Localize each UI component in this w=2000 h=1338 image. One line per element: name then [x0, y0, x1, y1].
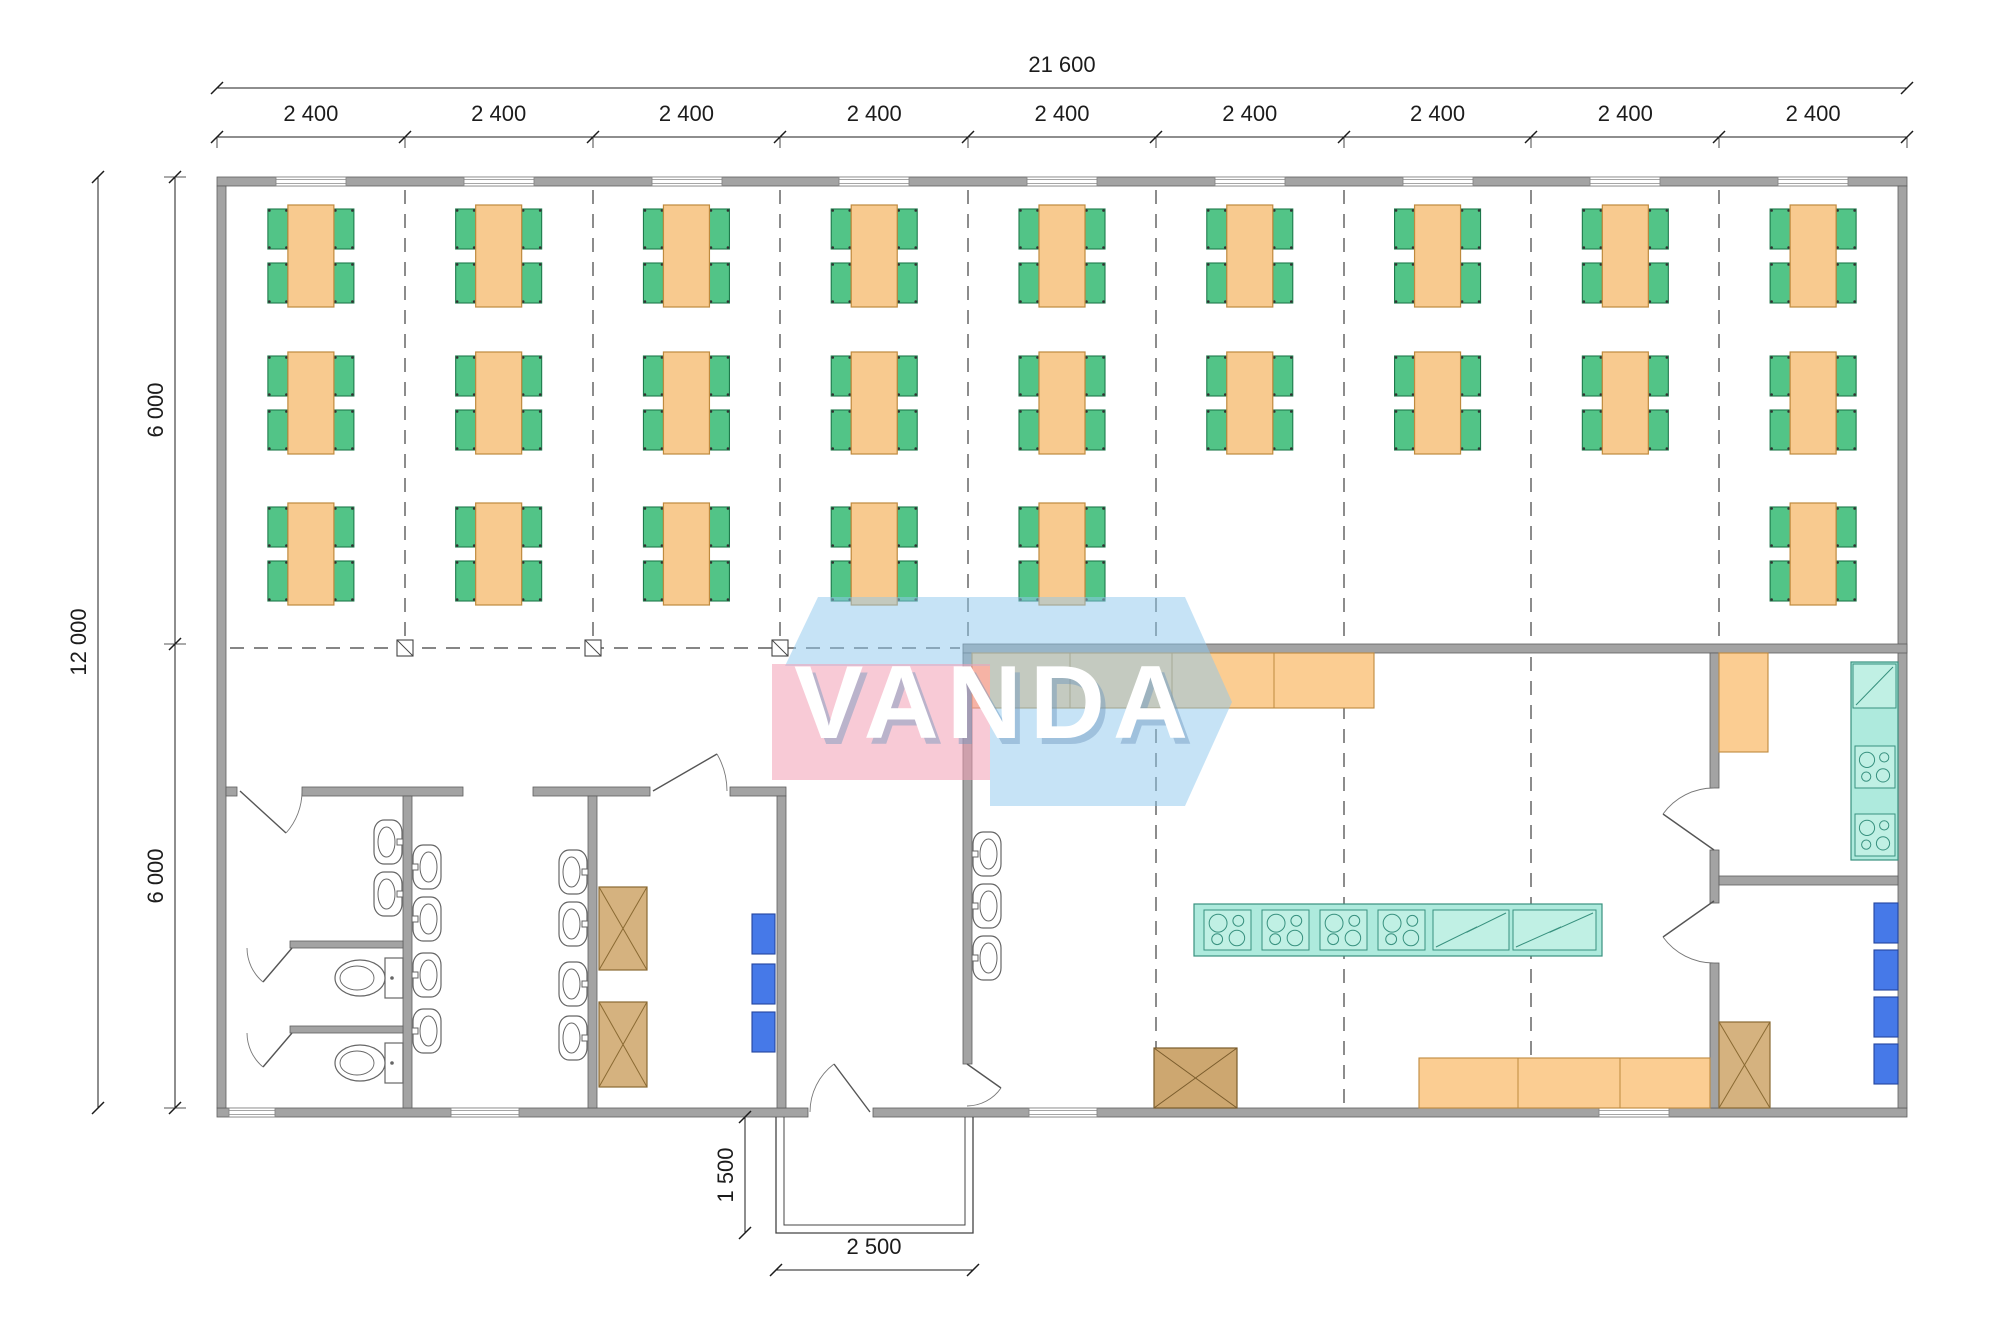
- chair-post: [1853, 598, 1856, 601]
- toilet-bowl: [335, 1045, 385, 1081]
- chair-post: [1478, 410, 1481, 413]
- chair: [334, 507, 354, 547]
- dimension-label: 2 400: [1598, 101, 1653, 126]
- dimension-label: 12 000: [66, 608, 91, 675]
- chair: [522, 356, 542, 396]
- chair-post: [268, 447, 271, 450]
- chair: [1085, 209, 1105, 249]
- watermark: VANDA VANDA: [772, 597, 1232, 806]
- chair-post: [727, 246, 730, 249]
- chair: [1273, 356, 1293, 396]
- chair: [1273, 410, 1293, 450]
- sink: [374, 820, 403, 864]
- chair-post: [1290, 300, 1293, 303]
- wall: [777, 796, 786, 1108]
- chair-post: [1770, 209, 1773, 212]
- dimension-label: 2 400: [1786, 101, 1841, 126]
- sinks: [374, 820, 1001, 1060]
- chair-post: [644, 410, 647, 413]
- chair-post: [1102, 561, 1105, 564]
- chair-post: [1770, 447, 1773, 450]
- chair-post: [456, 300, 459, 303]
- wall: [403, 796, 412, 1108]
- chair-post: [1853, 544, 1856, 547]
- chair-post: [268, 507, 271, 510]
- door-leaf: [834, 1064, 870, 1112]
- chair-post: [644, 544, 647, 547]
- chair-post: [727, 300, 730, 303]
- chair-post: [1102, 209, 1105, 212]
- chair-post: [1583, 246, 1586, 249]
- sink: [559, 1016, 588, 1060]
- counter: [1719, 653, 1768, 752]
- cooktop: [1855, 814, 1895, 856]
- window: [1029, 1108, 1097, 1117]
- wall: [290, 941, 403, 948]
- table: [476, 205, 522, 307]
- dimension-label: 2 400: [283, 101, 338, 126]
- dining-table-group: [1582, 352, 1668, 454]
- floor-plan: 21 6002 4002 4002 4002 4002 4002 4002 40…: [0, 0, 2000, 1338]
- toilet-bowl: [335, 960, 385, 996]
- table: [1790, 503, 1836, 605]
- chair-post: [727, 598, 730, 601]
- chair-post: [1770, 263, 1773, 266]
- chair-post: [644, 447, 647, 450]
- chair: [1461, 209, 1481, 249]
- window: [451, 1108, 519, 1117]
- chair-post: [644, 356, 647, 359]
- door-leaf: [240, 791, 286, 833]
- dining-table-group: [1019, 503, 1105, 605]
- wall: [1710, 653, 1719, 788]
- chair-post: [1583, 209, 1586, 212]
- dining-table-group: [1395, 205, 1481, 307]
- table: [1227, 352, 1273, 454]
- dimension-label: 2 500: [846, 1234, 901, 1259]
- chair-post: [644, 393, 647, 396]
- locker-box: [1874, 903, 1898, 943]
- chair-post: [1019, 393, 1022, 396]
- table: [851, 503, 897, 605]
- chair-post: [351, 263, 354, 266]
- chair: [1207, 209, 1227, 249]
- chair-post: [351, 447, 354, 450]
- sink-tap: [972, 851, 978, 857]
- locker-box: [752, 1012, 775, 1052]
- chair-post: [1102, 410, 1105, 413]
- chair: [1582, 356, 1602, 396]
- chair-post: [351, 209, 354, 212]
- table: [1227, 205, 1273, 307]
- toilet-flush: [390, 1061, 394, 1065]
- chair: [1770, 209, 1790, 249]
- table: [1415, 205, 1461, 307]
- sink: [374, 872, 403, 916]
- chair: [268, 561, 288, 601]
- dining-table-group: [643, 352, 729, 454]
- chair-post: [351, 393, 354, 396]
- chair-post: [1583, 393, 1586, 396]
- chair-post: [539, 447, 542, 450]
- dimension-label: 2 400: [1034, 101, 1089, 126]
- chair: [334, 263, 354, 303]
- toilet-tank: [385, 1043, 403, 1083]
- dining-table-group: [268, 352, 354, 454]
- chair: [831, 209, 851, 249]
- chair-post: [727, 507, 730, 510]
- chair-post: [1583, 410, 1586, 413]
- chair-post: [1019, 246, 1022, 249]
- wall: [730, 787, 786, 796]
- sink-tap: [972, 955, 978, 961]
- table: [663, 205, 709, 307]
- chair: [643, 561, 663, 601]
- chair: [1461, 356, 1481, 396]
- window: [1403, 177, 1473, 186]
- chair-post: [831, 246, 834, 249]
- chair: [897, 410, 917, 450]
- chair: [1085, 507, 1105, 547]
- chair: [456, 209, 476, 249]
- chair-post: [914, 507, 917, 510]
- chair-post: [1666, 300, 1669, 303]
- chair: [643, 263, 663, 303]
- toilet: [335, 958, 403, 998]
- chair: [1085, 263, 1105, 303]
- chair-post: [914, 246, 917, 249]
- chair-post: [644, 561, 647, 564]
- chair-post: [1478, 263, 1481, 266]
- chair-post: [1207, 209, 1210, 212]
- chair: [1273, 263, 1293, 303]
- chair-post: [831, 393, 834, 396]
- sink: [559, 962, 588, 1006]
- chair-post: [539, 598, 542, 601]
- dining-table-group: [1770, 503, 1856, 605]
- dining-table-group: [1207, 352, 1293, 454]
- chair: [897, 263, 917, 303]
- floor-plan-canvas: 21 6002 4002 4002 4002 4002 4002 4002 40…: [0, 0, 2000, 1338]
- chair: [831, 410, 851, 450]
- chair-post: [914, 209, 917, 212]
- chair: [522, 410, 542, 450]
- chair-post: [644, 598, 647, 601]
- cooktop: [1262, 910, 1309, 950]
- chair: [897, 507, 917, 547]
- table: [476, 503, 522, 605]
- chair-post: [1290, 447, 1293, 450]
- chair-post: [1666, 447, 1669, 450]
- chair: [334, 356, 354, 396]
- chair: [456, 507, 476, 547]
- chair-post: [1019, 544, 1022, 547]
- chair-post: [1290, 410, 1293, 413]
- door-swing-arc: [1663, 788, 1714, 814]
- window: [1590, 177, 1660, 186]
- chair-post: [539, 507, 542, 510]
- chair-post: [1770, 246, 1773, 249]
- chair-post: [539, 263, 542, 266]
- dining-table-group: [456, 503, 542, 605]
- locker-box: [752, 914, 775, 954]
- chair-post: [727, 263, 730, 266]
- chair-post: [1583, 447, 1586, 450]
- door-leaf: [263, 948, 292, 982]
- sink-tap: [582, 981, 588, 987]
- chair: [522, 507, 542, 547]
- table: [1039, 503, 1085, 605]
- chair-post: [1207, 263, 1210, 266]
- chair-post: [1478, 246, 1481, 249]
- chair: [522, 263, 542, 303]
- dimension-label: 21 600: [1028, 52, 1095, 77]
- window: [464, 177, 534, 186]
- chair-post: [727, 209, 730, 212]
- chair: [1461, 410, 1481, 450]
- chair: [709, 263, 729, 303]
- chair: [1836, 263, 1856, 303]
- chair: [1770, 263, 1790, 303]
- dimension-label: 2 400: [1410, 101, 1465, 126]
- chair-post: [268, 544, 271, 547]
- chair-post: [644, 300, 647, 303]
- sink-tap: [412, 916, 418, 922]
- chair-post: [914, 393, 917, 396]
- door-swing-arc: [286, 791, 302, 833]
- table: [1790, 205, 1836, 307]
- chair-post: [1019, 410, 1022, 413]
- chair-post: [539, 544, 542, 547]
- sink: [412, 845, 441, 889]
- chair: [334, 561, 354, 601]
- door-leaf: [1663, 814, 1714, 850]
- dining-tables: [268, 205, 1856, 605]
- chair-post: [1395, 246, 1398, 249]
- chair: [1207, 356, 1227, 396]
- window: [1778, 177, 1848, 186]
- chair: [334, 209, 354, 249]
- chair: [831, 263, 851, 303]
- wall: [302, 787, 463, 796]
- chair-post: [351, 246, 354, 249]
- chair-post: [1019, 507, 1022, 510]
- chair-post: [831, 263, 834, 266]
- chair: [268, 410, 288, 450]
- chair: [1836, 410, 1856, 450]
- wall: [1710, 850, 1719, 903]
- chair-post: [1102, 447, 1105, 450]
- chair: [1085, 561, 1105, 601]
- chair-post: [1853, 246, 1856, 249]
- chair: [268, 209, 288, 249]
- chair: [1582, 410, 1602, 450]
- chair: [897, 356, 917, 396]
- chair: [268, 263, 288, 303]
- porch-outline: [776, 1117, 973, 1233]
- chair-post: [831, 410, 834, 413]
- chair: [1019, 507, 1039, 547]
- chair: [831, 507, 851, 547]
- chair-post: [1395, 209, 1398, 212]
- chair: [709, 410, 729, 450]
- chair: [1836, 356, 1856, 396]
- locker-box: [1874, 1044, 1898, 1084]
- dining-table-group: [643, 503, 729, 605]
- chair-post: [644, 507, 647, 510]
- toilets: [335, 958, 403, 1083]
- chair: [643, 209, 663, 249]
- wall: [226, 787, 237, 796]
- chair-post: [727, 356, 730, 359]
- toilet-flush: [390, 976, 394, 980]
- chair-post: [456, 209, 459, 212]
- chair-post: [1102, 246, 1105, 249]
- chair-post: [456, 410, 459, 413]
- chair: [456, 263, 476, 303]
- chair: [897, 209, 917, 249]
- dining-table-group: [1395, 352, 1481, 454]
- chair: [1395, 356, 1415, 396]
- sink-tap: [582, 1035, 588, 1041]
- chair-post: [1102, 263, 1105, 266]
- chair: [1019, 209, 1039, 249]
- chair-post: [351, 598, 354, 601]
- chair-post: [268, 263, 271, 266]
- chair: [831, 356, 851, 396]
- sink: [972, 884, 1001, 928]
- toilet: [335, 1043, 403, 1083]
- chair: [456, 410, 476, 450]
- sink: [559, 902, 588, 946]
- chair-post: [727, 393, 730, 396]
- chair-post: [1019, 447, 1022, 450]
- table: [1039, 205, 1085, 307]
- wall: [1719, 876, 1898, 885]
- sink: [412, 1009, 441, 1053]
- chair: [1648, 356, 1668, 396]
- sink-tap: [397, 839, 403, 845]
- chair: [709, 356, 729, 396]
- chair-post: [1019, 356, 1022, 359]
- chair-post: [1583, 263, 1586, 266]
- dining-table-group: [831, 503, 917, 605]
- window: [229, 1108, 275, 1117]
- chair-post: [1102, 356, 1105, 359]
- chair-post: [539, 561, 542, 564]
- chair-post: [351, 561, 354, 564]
- chair-post: [1290, 263, 1293, 266]
- chair-post: [1853, 410, 1856, 413]
- chair-post: [1583, 356, 1586, 359]
- chair-post: [914, 300, 917, 303]
- chair: [1582, 209, 1602, 249]
- chair: [1582, 263, 1602, 303]
- chair-post: [456, 356, 459, 359]
- chair-post: [539, 209, 542, 212]
- chair-post: [1207, 246, 1210, 249]
- chair-post: [1853, 507, 1856, 510]
- chair-post: [1770, 393, 1773, 396]
- dining-table-group: [1019, 352, 1105, 454]
- door-leaf: [1663, 901, 1714, 937]
- chair-post: [539, 246, 542, 249]
- dining-table-group: [1770, 352, 1856, 454]
- wall: [290, 1026, 403, 1033]
- chair-post: [1395, 410, 1398, 413]
- wall: [873, 1108, 1907, 1117]
- chair: [1273, 209, 1293, 249]
- chair-post: [1207, 410, 1210, 413]
- dimension-label: 1 500: [713, 1147, 738, 1202]
- dining-table-group: [268, 205, 354, 307]
- chair: [1648, 263, 1668, 303]
- table: [288, 352, 334, 454]
- locker-box: [1874, 997, 1898, 1037]
- table: [288, 503, 334, 605]
- chair-post: [1102, 507, 1105, 510]
- chair: [1019, 561, 1039, 601]
- chair: [1461, 263, 1481, 303]
- chair-post: [1207, 393, 1210, 396]
- dining-table-group: [831, 352, 917, 454]
- sink: [972, 936, 1001, 980]
- chair: [1770, 507, 1790, 547]
- chair: [643, 410, 663, 450]
- dining-table-group: [456, 352, 542, 454]
- dimension-label: 6 000: [143, 382, 168, 437]
- chair: [1836, 561, 1856, 601]
- dining-table-group: [268, 503, 354, 605]
- chair-post: [831, 356, 834, 359]
- chair-post: [1666, 356, 1669, 359]
- chair-post: [1019, 561, 1022, 564]
- chair-post: [268, 246, 271, 249]
- chair: [268, 507, 288, 547]
- window: [839, 177, 909, 186]
- window: [1027, 177, 1097, 186]
- chair-post: [351, 410, 354, 413]
- chair-post: [1770, 598, 1773, 601]
- table: [288, 205, 334, 307]
- chair-post: [456, 507, 459, 510]
- chair-post: [831, 447, 834, 450]
- chair-post: [1853, 393, 1856, 396]
- dining-table-group: [831, 205, 917, 307]
- chair-post: [1666, 410, 1669, 413]
- chair: [1395, 209, 1415, 249]
- chair-post: [268, 410, 271, 413]
- chair: [1770, 561, 1790, 601]
- chair: [1019, 263, 1039, 303]
- chair: [1207, 410, 1227, 450]
- dimension-label: 2 400: [659, 101, 714, 126]
- chair: [709, 209, 729, 249]
- cooktop: [1204, 910, 1251, 950]
- chair-post: [1395, 300, 1398, 303]
- chair-post: [1478, 393, 1481, 396]
- chair-post: [727, 561, 730, 564]
- chair-post: [1019, 300, 1022, 303]
- chair-post: [831, 300, 834, 303]
- chair: [643, 507, 663, 547]
- wall: [588, 796, 597, 1108]
- window: [276, 177, 346, 186]
- sink: [559, 850, 588, 894]
- table: [1602, 352, 1648, 454]
- chair-post: [831, 561, 834, 564]
- chair: [334, 410, 354, 450]
